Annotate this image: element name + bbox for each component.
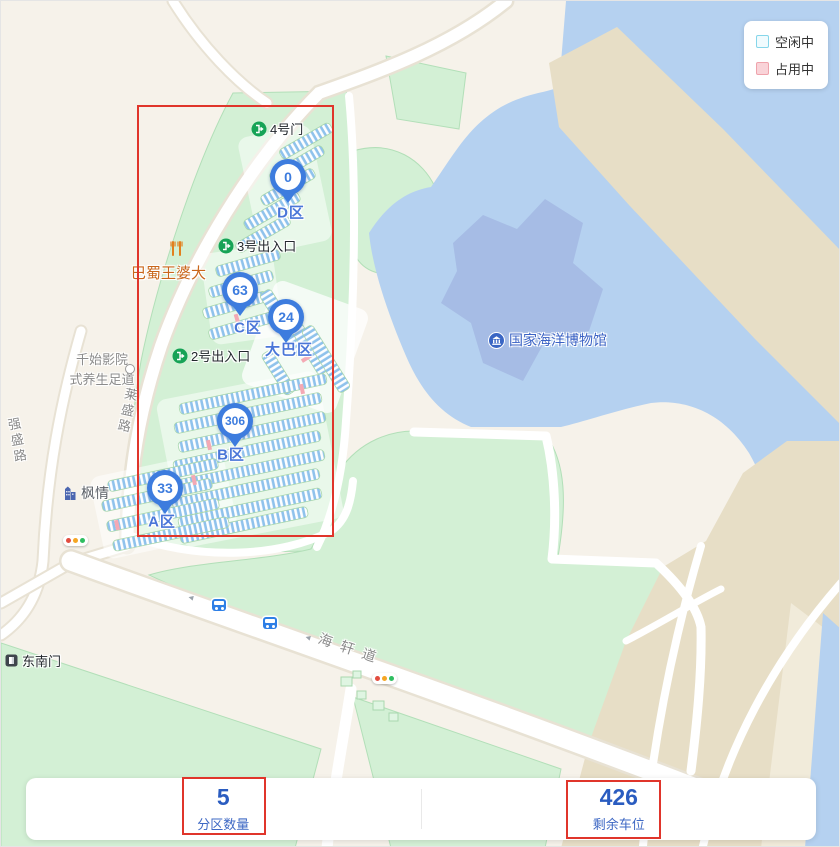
- location-dot-icon: [125, 364, 135, 374]
- parking-map-page: 4号门 3号出入口 2号出入口 巴蜀王婆大 千始影院 式养生足道: [0, 0, 840, 847]
- restaurant-icon: [169, 241, 185, 261]
- pin-tail: [157, 503, 173, 514]
- zone-pin-A[interactable]: 33: [147, 470, 183, 506]
- stat-remaining-spaces: 426 剩余车位: [422, 778, 817, 840]
- traffic-light-icon: [63, 535, 88, 546]
- door-icon: [5, 654, 18, 667]
- available-swatch: [756, 35, 769, 48]
- legend-label-available: 空闲中: [775, 32, 814, 51]
- traffic-light-icon: [372, 673, 397, 684]
- pin-bubble: 63: [222, 272, 258, 308]
- zone-pin-C[interactable]: 63: [222, 272, 258, 308]
- poi-restaurant: 巴蜀王婆大: [131, 262, 206, 283]
- legend-item-available[interactable]: 空闲中: [756, 32, 814, 51]
- gate-icon: [218, 238, 234, 254]
- map-legend: 空闲中 占用中: [744, 21, 828, 89]
- gate-label-3: 3号出入口: [218, 236, 296, 255]
- poi-museum: 国家海洋博物馆: [488, 330, 607, 350]
- pin-tail: [232, 305, 248, 316]
- gate-label-2: 2号出入口: [172, 346, 250, 365]
- building-icon: [63, 486, 77, 501]
- zone-pin-D[interactable]: 0: [270, 159, 306, 195]
- zone-label-D: D区: [277, 202, 305, 223]
- pin-bubble: 306: [217, 403, 253, 439]
- legend-label-occupied: 占用中: [775, 59, 814, 78]
- pin-tail: [227, 436, 243, 447]
- remaining-spaces-value: 426: [600, 785, 638, 810]
- zone-pin-bus[interactable]: 24: [268, 299, 304, 335]
- pin-bubble: 33: [147, 470, 183, 506]
- stats-bar: 5 分区数量 426 剩余车位: [26, 778, 816, 840]
- zone-count-value: 5: [217, 785, 230, 810]
- remaining-spaces-label: 剩余车位: [593, 814, 645, 833]
- gate-icon: [251, 121, 267, 137]
- poi-southeast-gate: 东南门: [5, 651, 61, 670]
- gate-icon: [172, 348, 188, 364]
- pin-tail: [278, 332, 294, 343]
- zone-count-label: 分区数量: [197, 814, 249, 833]
- pin-bubble: 0: [270, 159, 306, 195]
- bus-stop-icon: [212, 599, 226, 611]
- stat-zone-count: 5 分区数量: [26, 778, 421, 840]
- bus-stop-icon: [263, 617, 277, 629]
- gate-label-4: 4号门: [251, 119, 303, 138]
- zone-pin-B[interactable]: 306: [217, 403, 253, 439]
- poi-fengqing: 枫情: [63, 483, 109, 503]
- occupied-swatch: [756, 62, 769, 75]
- legend-item-occupied[interactable]: 占用中: [756, 59, 814, 78]
- zone-label-C: C区: [234, 317, 262, 338]
- poi-spa: 千始影院 式养生足道: [47, 350, 157, 389]
- pin-bubble: 24: [268, 299, 304, 335]
- museum-icon: [488, 332, 505, 349]
- pin-tail: [280, 192, 296, 203]
